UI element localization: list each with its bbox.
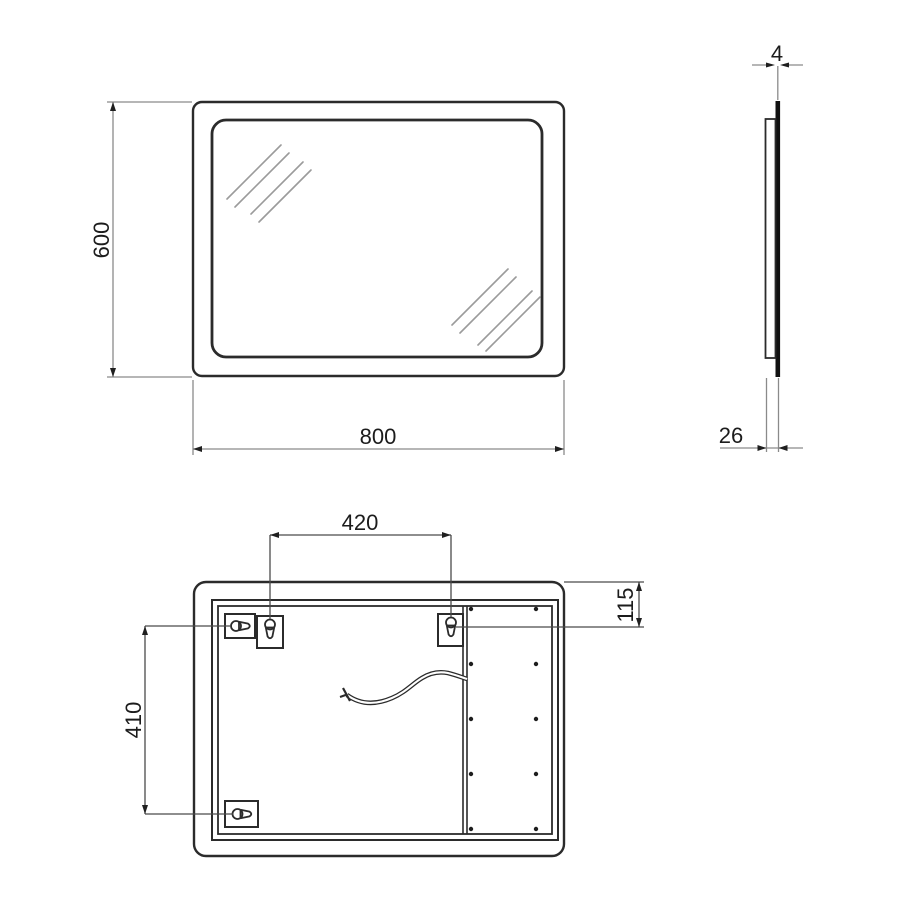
dimension-side-thickness: 4 [752, 41, 803, 68]
dim-label-600: 600 [89, 222, 114, 259]
mount-plate-top-left-vertical [257, 616, 283, 648]
dimension-front-width: 800 [193, 380, 564, 455]
mirror-drawing-svg: 600 800 4 26 [0, 0, 900, 900]
back-outline [194, 582, 564, 856]
back-panel-inner [218, 606, 552, 834]
dim-label-4: 4 [771, 41, 783, 66]
technical-drawing-page: 600 800 4 26 [0, 0, 900, 900]
glass-reflection-hatch-bottomright [452, 269, 540, 351]
dimension-side-depth: 26 [719, 378, 803, 452]
dim-label-26: 26 [719, 423, 743, 448]
power-cable [340, 672, 467, 703]
back-view [194, 582, 564, 856]
front-view [193, 102, 564, 376]
dim-label-800: 800 [360, 424, 397, 449]
back-panel-outer [212, 600, 558, 840]
side-view [766, 66, 781, 377]
front-glass [212, 120, 542, 357]
mount-plate-top-right-vertical [438, 614, 463, 646]
front-frame [193, 102, 564, 376]
dim-label-420: 420 [342, 510, 379, 535]
electric-compartment [463, 606, 538, 834]
dimension-mount-spacing: 420 [270, 510, 451, 619]
screw-dots [469, 607, 538, 831]
dimension-top-offset: 115 [456, 582, 644, 627]
dimension-front-height: 600 [89, 102, 192, 377]
dim-label-410: 410 [121, 702, 146, 739]
side-backing-profile [766, 119, 776, 358]
glass-reflection-hatch-topleft [227, 145, 311, 222]
dim-label-115: 115 [613, 587, 638, 622]
dimension-mount-vertical: 410 [121, 626, 233, 814]
